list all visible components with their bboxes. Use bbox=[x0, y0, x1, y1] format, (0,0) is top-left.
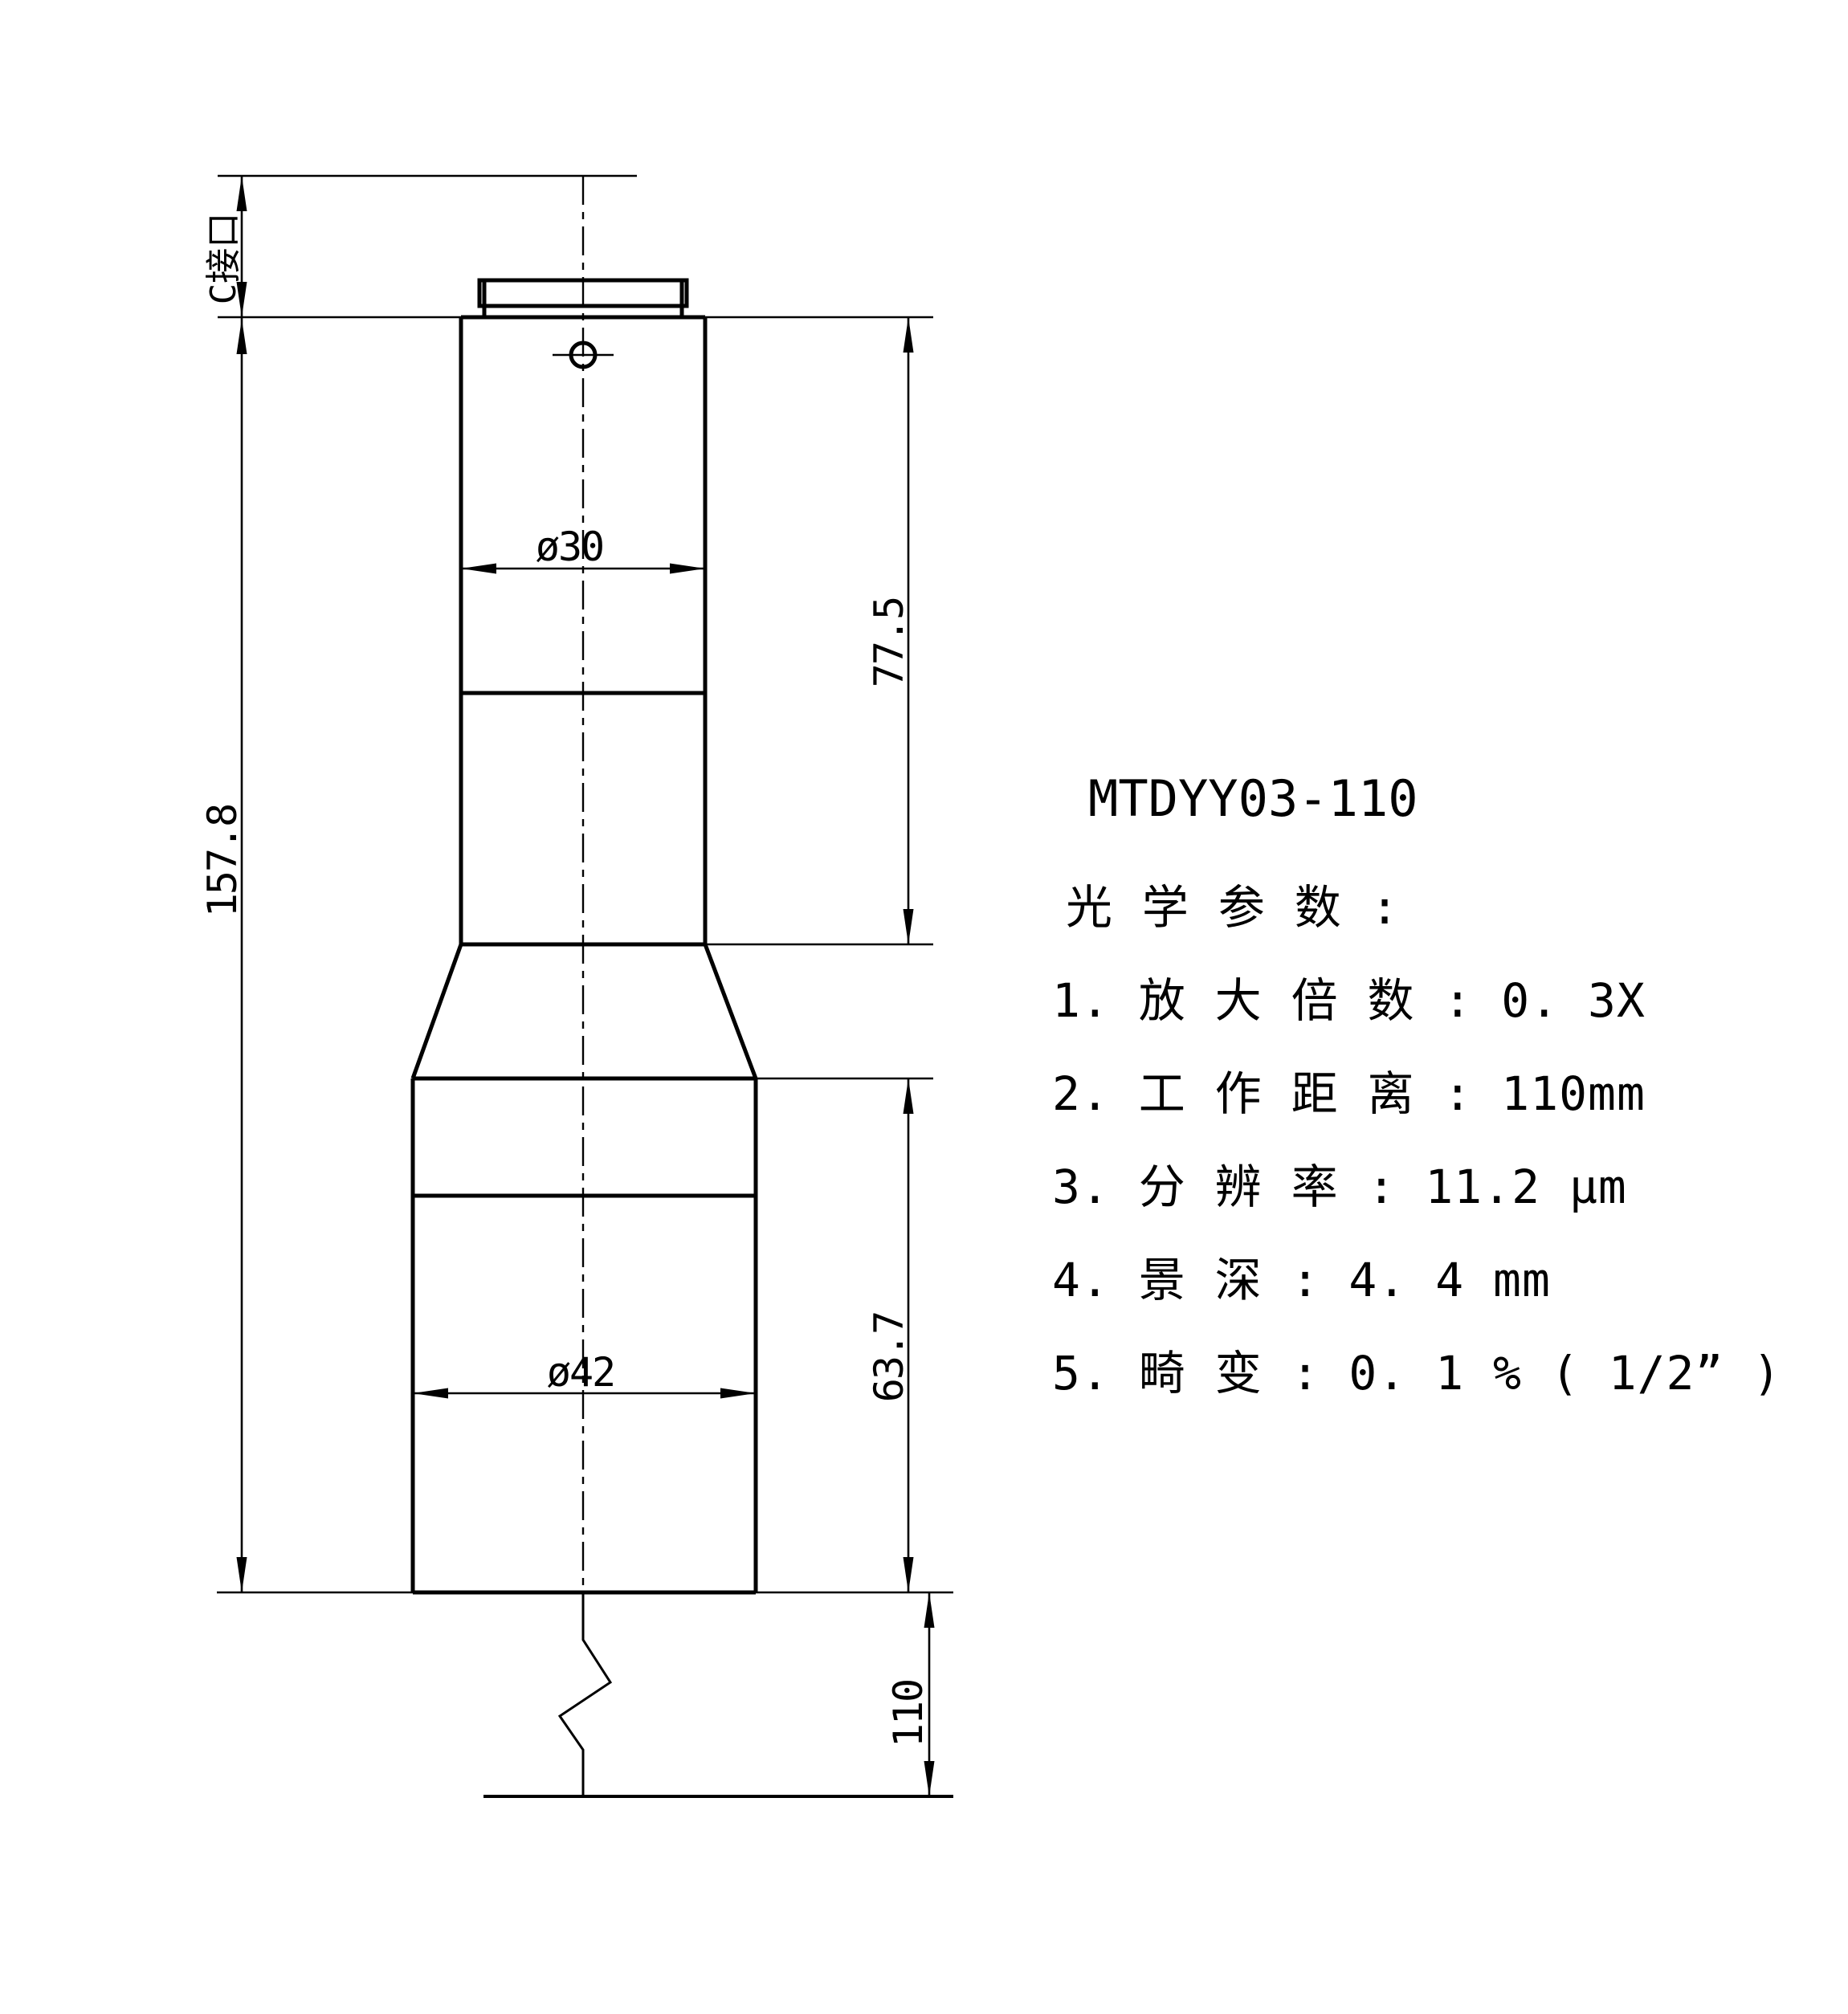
technical-drawing: C接口 157.8 ø30 77.5 ø42 63.7 110 MTDYY03-… bbox=[0, 0, 1848, 2014]
arrow-up bbox=[237, 319, 247, 354]
arrow-right bbox=[720, 1388, 756, 1399]
arrow-left bbox=[413, 1388, 448, 1399]
model-title: MTDYY03-110 bbox=[1088, 769, 1418, 828]
spec-item-distortion: 5. 畸 变 : 0. 1 % ( 1/2” ) bbox=[1052, 1346, 1781, 1400]
spec-block: MTDYY03-110 光 学 参 数 : 1. 放 大 倍 数 : 0. 3X… bbox=[1052, 769, 1781, 1400]
lower-diameter-label: ø42 bbox=[547, 1349, 614, 1396]
taper-right-edge bbox=[705, 944, 756, 1078]
spec-heading: 光 学 参 数 : bbox=[1066, 880, 1400, 935]
drawing-sheet: C接口 157.8 ø30 77.5 ø42 63.7 110 MTDYY03-… bbox=[0, 0, 1848, 2014]
lower-length-label: 63.7 bbox=[866, 1312, 912, 1402]
taper-left-edge bbox=[413, 944, 461, 1078]
overall-length-label: 157.8 bbox=[199, 805, 246, 918]
spec-item-working-distance: 2. 工 作 距 离 : 110mm bbox=[1052, 1066, 1646, 1121]
arrow-down bbox=[237, 1557, 247, 1592]
arrow-left bbox=[461, 564, 496, 574]
arrow-right bbox=[670, 564, 705, 574]
spec-item-depth-of-field: 4. 景 深 : 4. 4 mm bbox=[1052, 1253, 1551, 1307]
arrow-up bbox=[237, 176, 247, 211]
arrow-down bbox=[924, 1761, 935, 1796]
dimension-arrows bbox=[237, 176, 935, 1796]
arrow-up bbox=[904, 317, 914, 353]
extension-lines bbox=[217, 176, 953, 1796]
arrow-up bbox=[924, 1592, 935, 1628]
dimension-labels: C接口 157.8 ø30 77.5 ø42 63.7 110 bbox=[199, 213, 932, 1747]
break-zigzag-line bbox=[560, 1592, 610, 1796]
upper-length-label: 77.5 bbox=[866, 597, 912, 687]
upper-diameter-label: ø30 bbox=[536, 524, 603, 570]
dimension-lines bbox=[242, 176, 929, 1796]
spec-item-resolution: 3. 分 辨 率 : 11.2 μm bbox=[1052, 1160, 1627, 1214]
working-distance-label: 110 bbox=[885, 1680, 932, 1747]
centerline-group bbox=[560, 176, 610, 1796]
arrow-up bbox=[904, 1078, 914, 1114]
cmount-label: C接口 bbox=[203, 213, 244, 305]
arrow-down bbox=[904, 1557, 914, 1592]
spec-item-magnification: 1. 放 大 倍 数 : 0. 3X bbox=[1052, 973, 1646, 1028]
arrow-down bbox=[904, 909, 914, 944]
